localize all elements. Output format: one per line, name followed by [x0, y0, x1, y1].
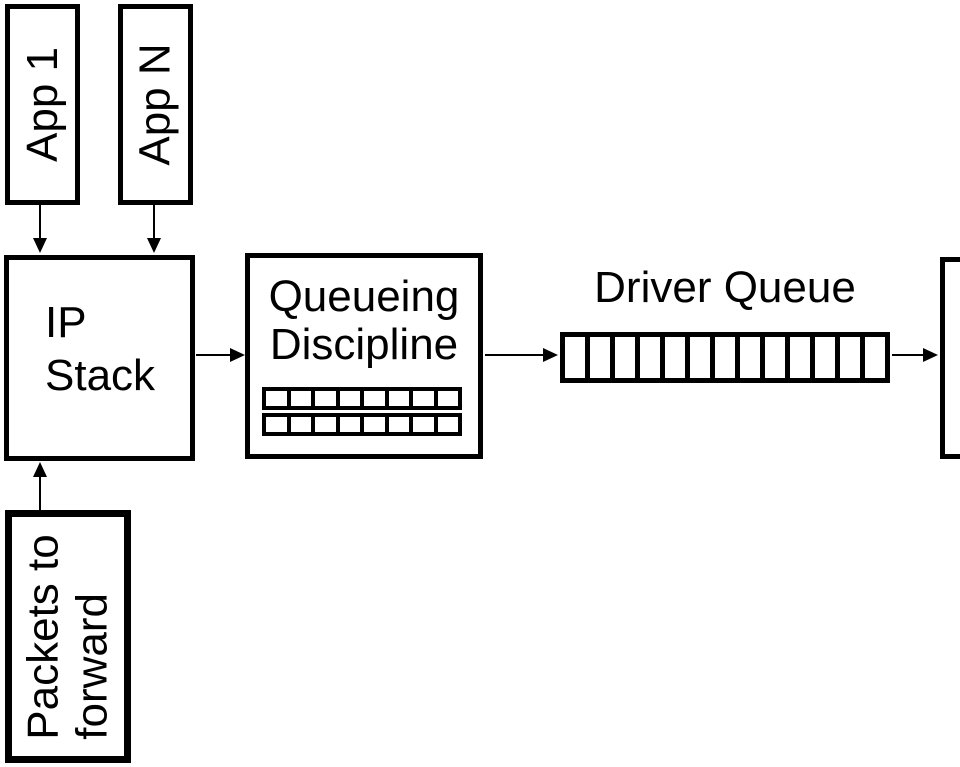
- packet-cell: [615, 337, 640, 378]
- arrow-appN-to-ipstack: [153, 205, 167, 253]
- arrow-head: [543, 348, 558, 362]
- ip-stack-label-line1: IP: [45, 296, 155, 349]
- ip-stack-label: IP Stack: [45, 296, 155, 402]
- app1-box: App 1: [5, 4, 80, 205]
- arrow-driver-queue-to-nic: [892, 348, 938, 362]
- packet-cell: [665, 337, 690, 378]
- arrow-head: [147, 238, 161, 253]
- arrow-head: [33, 238, 47, 253]
- driver-queue: [560, 332, 890, 383]
- arrow-qdisc-to-driver-queue: [485, 348, 558, 362]
- packets-to-forward-label: Packets to forward: [19, 534, 117, 739]
- arrow-shaft: [892, 354, 925, 356]
- app1-label: App 1: [18, 47, 67, 162]
- packet-cell: [690, 337, 715, 378]
- packet-cell: [865, 337, 885, 378]
- packet-cell: [765, 337, 790, 378]
- ip-stack-label-line2: Stack: [45, 349, 155, 402]
- packet-cell: [790, 337, 815, 378]
- packet-cell: [315, 391, 340, 406]
- arrow-head: [230, 348, 245, 362]
- packet-cell: [413, 417, 438, 432]
- arrow-shaft: [196, 354, 232, 356]
- nic-partial-box: [940, 257, 960, 459]
- appN-label: App N: [131, 43, 180, 165]
- packet-cell: [640, 337, 665, 378]
- appN-label-wrap: App N: [123, 9, 188, 200]
- appN-box: App N: [118, 4, 193, 205]
- packet-cell: [340, 417, 365, 432]
- packet-cell: [413, 391, 438, 406]
- packet-cell: [266, 417, 291, 432]
- qdisc-label-line1: Queueing: [250, 273, 478, 321]
- packet-cell: [565, 337, 590, 378]
- packet-cell: [340, 391, 365, 406]
- packet-cell: [438, 391, 459, 406]
- packet-cell: [438, 417, 459, 432]
- arrow-app1-to-ipstack: [39, 205, 53, 253]
- arrow-shaft: [39, 475, 41, 510]
- packet-cell: [364, 417, 389, 432]
- packets-label-line1: Packets to: [19, 534, 68, 739]
- packets-label-line2: forward: [68, 534, 117, 739]
- arrow-head: [923, 348, 938, 362]
- packet-cell: [364, 391, 389, 406]
- diagram-canvas: App 1 App N IP Stack Queueing Discipline: [0, 0, 960, 767]
- arrow-ipstack-to-qdisc: [196, 348, 245, 362]
- packet-cell: [291, 417, 316, 432]
- packet-cell: [291, 391, 316, 406]
- packet-cell: [389, 417, 414, 432]
- packet-cell: [389, 391, 414, 406]
- packet-cell: [815, 337, 840, 378]
- qdisc-packet-row-1: [262, 387, 462, 410]
- arrow-shaft: [485, 354, 545, 356]
- packet-cell: [315, 417, 340, 432]
- packet-cell: [715, 337, 740, 378]
- qdisc-label-line2: Discipline: [250, 321, 478, 369]
- packet-cell: [590, 337, 615, 378]
- qdisc-packet-row-2: [262, 413, 462, 436]
- driver-queue-label: Driver Queue: [560, 264, 890, 312]
- packet-cell: [266, 391, 291, 406]
- packets-to-forward-box: Packets to forward: [5, 510, 131, 763]
- arrow-packets-to-ipstack: [39, 462, 53, 510]
- packet-cell: [840, 337, 865, 378]
- queueing-discipline-label: Queueing Discipline: [250, 273, 478, 369]
- ip-stack-box: IP Stack: [4, 255, 195, 461]
- arrow-shaft: [153, 205, 155, 241]
- packets-label-wrap: Packets to forward: [12, 517, 124, 756]
- packet-cell: [740, 337, 765, 378]
- app1-label-wrap: App 1: [10, 9, 75, 200]
- arrow-shaft: [39, 205, 41, 241]
